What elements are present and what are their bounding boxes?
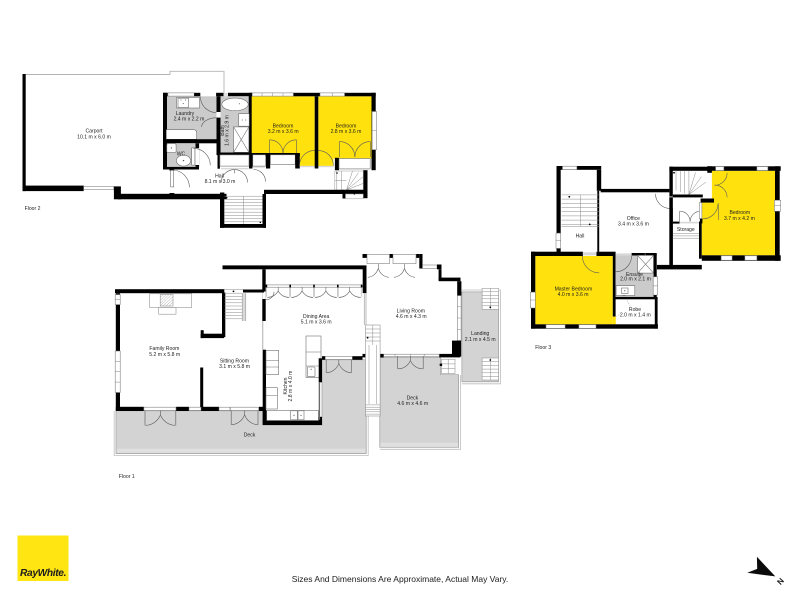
svg-text:10.1 m x 6.0 m: 10.1 m x 6.0 m	[77, 135, 111, 141]
svg-text:8.1 m x 3.0 m: 8.1 m x 3.0 m	[205, 179, 236, 185]
svg-text:3.4 m x 3.6 m: 3.4 m x 3.6 m	[618, 221, 649, 227]
svg-text:Floor 2: Floor 2	[25, 206, 41, 212]
svg-text:3.1 m x 5.8 m: 3.1 m x 5.8 m	[219, 364, 250, 370]
svg-text:RayWhite.: RayWhite.	[20, 568, 66, 579]
svg-text:5.1 m x 3.6 m: 5.1 m x 3.6 m	[301, 320, 332, 326]
svg-text:2.1 m x 4.5 m: 2.1 m x 4.5 m	[465, 337, 496, 343]
svg-text:Floor 3: Floor 3	[535, 345, 551, 351]
svg-text:Hall: Hall	[576, 233, 585, 239]
svg-text:1.6 m x 2.9 m: 1.6 m x 2.9 m	[225, 115, 231, 146]
svg-text:2.0 m x 2.1 m: 2.0 m x 2.1 m	[620, 277, 651, 283]
svg-text:Storage: Storage	[677, 227, 695, 233]
svg-text:Floor 1: Floor 1	[119, 474, 135, 480]
svg-text:3.2 m x 3.6 m: 3.2 m x 3.6 m	[268, 129, 299, 135]
svg-text:4.6 m x 4.6 m: 4.6 m x 4.6 m	[397, 401, 428, 407]
svg-text:Sizes And Dimensions Are Appro: Sizes And Dimensions Are Approximate, Ac…	[292, 574, 509, 584]
svg-text:5.2 m x 5.8 m: 5.2 m x 5.8 m	[149, 352, 180, 358]
svg-text:2.8 m x 3.6 m: 2.8 m x 3.6 m	[331, 129, 362, 135]
svg-text:2.4 m x 2.2 m: 2.4 m x 2.2 m	[174, 116, 205, 122]
svg-text:4.0 m x 3.6 m: 4.0 m x 3.6 m	[558, 292, 589, 298]
svg-text:4.6 m x 4.3 m: 4.6 m x 4.3 m	[396, 314, 427, 320]
svg-text:Deck: Deck	[244, 433, 256, 439]
svg-text:WC: WC	[177, 151, 186, 157]
svg-text:2.8 m x 4.0 m: 2.8 m x 4.0 m	[288, 371, 294, 402]
svg-text:2.0 m x 1.4 m: 2.0 m x 1.4 m	[620, 312, 651, 318]
svg-text:3.7 m x 4.2 m: 3.7 m x 4.2 m	[724, 216, 755, 222]
